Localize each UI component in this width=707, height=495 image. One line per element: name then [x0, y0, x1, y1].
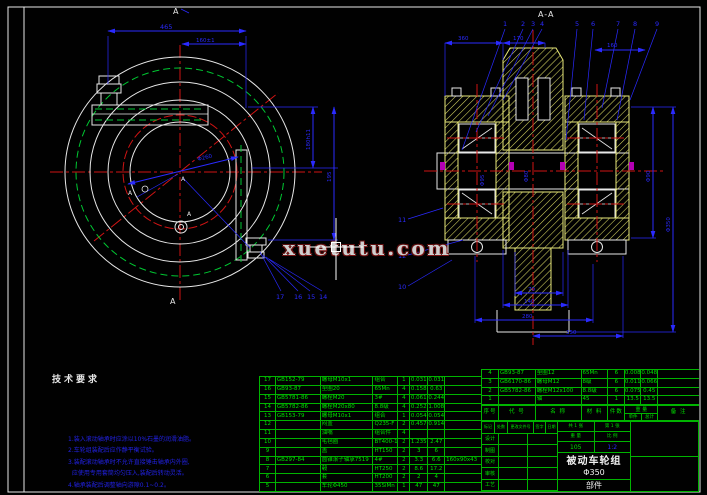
section-view: A-A — [398, 10, 676, 345]
table-row: 16 GB93-87 垫圈20 65Mn 4 0.158 0.63 — [260, 386, 481, 395]
dim-label: 160 — [607, 43, 618, 49]
table-row: 7 毂 HT250 2 8.6 17.2 — [260, 465, 481, 474]
scale-label: 比 例 — [595, 432, 631, 442]
watermark: xuetutu.com — [283, 236, 451, 260]
table-row: 12 闷盖 Q235-F 2 0.457 0.914 — [260, 421, 481, 430]
table-row: 13 GB153-79 螺母M10x1 组合 1 0.054 0.054 — [260, 412, 481, 421]
header-no: 序号 — [482, 406, 499, 421]
admin-row: 制图 — [482, 445, 557, 457]
sheet-number: 第 1 张 — [595, 422, 631, 432]
title-block-admin: 标记 处数 更改文件号 签字 日期 设计 制图 — [482, 422, 558, 491]
dim-label: Φ90 — [646, 170, 652, 182]
scale-value: 1:2 — [595, 442, 631, 454]
left-view-dimensions: 465 160±1 180h11 195 Φ260 — [108, 23, 338, 248]
sheet-count: 共 1 张 — [558, 422, 595, 432]
callout-number: 16 — [294, 293, 302, 301]
parts-table-header: 序号 代 号 名 称 材 料 件数 重 量 单件 总计 备 注 — [481, 405, 699, 421]
header-qty: 件数 — [608, 406, 625, 421]
datum-label-center: A — [181, 176, 186, 183]
title-block-mid: 共 1 张 第 1 张 重 量 比 例 105 1:2 被动车轮组 Φ350 部… — [558, 422, 631, 491]
admin-row: 设计 — [482, 434, 557, 446]
table-row: 6 套 HT200 2 2 4 — [260, 474, 481, 483]
weight-value: 105 — [558, 442, 595, 454]
extra-cell-bottom — [631, 457, 698, 491]
table-row: 2 GB5782-86 螺栓M12x100 8.8级 6 0.075 0.45 — [482, 388, 699, 397]
admin-header-row: 标记 处数 更改文件号 签字 日期 — [482, 422, 557, 434]
header-material: 材 料 — [582, 406, 609, 421]
drawing-title-size: Φ350 — [583, 468, 605, 477]
dim-label: 350 — [566, 330, 577, 336]
dim-label: 170 — [513, 36, 524, 42]
dim-label: 280 — [522, 314, 533, 320]
weight-label: 重 量 — [558, 432, 595, 442]
datum-label-left: A — [128, 190, 133, 197]
dim-height1: 180h11 — [306, 129, 312, 150]
table-row: 8 GB297-84 圆锥滚子轴承7519 4# 2 3.3 6.6 160x9… — [260, 457, 481, 466]
dim-inner-width: 160±1 — [196, 38, 215, 44]
callout-number: 15 — [307, 293, 315, 301]
table-row: 3 GB6170-86 螺母M12 8级 6 0.011 0.066 — [482, 379, 699, 388]
side-plate — [236, 145, 247, 266]
callout-number: 2 — [521, 20, 525, 28]
drawing-title-name: 被动车轮组 — [567, 456, 622, 468]
table-row: 10 毛毡圈 BT400-15 2 1.235 2.47 — [260, 439, 481, 448]
admin-row: 审核 — [482, 468, 557, 480]
dim-height2: 195 — [327, 171, 333, 182]
callout-number: 3 — [531, 20, 535, 28]
dim-width: 465 — [160, 23, 172, 31]
dim-diameter: Φ260 — [197, 153, 213, 163]
drawing-subtitle: 部件 — [558, 480, 630, 491]
parts-table-left: 17 GB152-79 螺母M10x1 组合 1 0.031 0.031 16 … — [259, 376, 481, 492]
callout-number: 1 — [503, 20, 507, 28]
dim-label: 140 — [524, 299, 535, 305]
header-weight-group: 重 量 单件 总计 — [625, 406, 658, 421]
dim-label: Φ95 — [480, 174, 486, 186]
admin-row: 校对 — [482, 457, 557, 469]
title-block-extra — [631, 422, 698, 491]
callout-number: 8 — [633, 20, 637, 28]
header-name: 名 称 — [536, 406, 582, 421]
header-unit: 单件 — [625, 414, 641, 421]
header-weight: 重 量 — [625, 406, 657, 414]
table-row: 4 GB93-87 垫圈12 65Mn 6 0.008 0.048 — [482, 370, 699, 379]
dim-label: 70 — [528, 287, 535, 293]
table-row: 15 GB5781-86 螺栓M20 3# 4 0.061 0.244 — [260, 395, 481, 404]
callout-number: 5 — [575, 20, 579, 28]
table-row: 11 油嘴 组合件 4 — [260, 430, 481, 439]
callout-number: 6 — [591, 20, 595, 28]
callout-number: 10 — [398, 283, 406, 291]
title-block: 标记 处数 更改文件号 签字 日期 设计 制图 — [481, 421, 699, 492]
table-row: 5 车轮Φ450 35SiMn 1 47 47 — [260, 483, 481, 492]
admin-row: 工艺 — [482, 480, 557, 492]
tech-req-title: 技术要求 — [52, 372, 252, 385]
callout-number: 9 — [655, 20, 659, 28]
table-row: 17 GB152-79 螺母M10x1 组合 1 0.031 0.031 — [260, 377, 481, 386]
tech-req-lines: 1.装入滚动轴承时应涂以10%石墨的润滑油脂。2.车轮组装配后应作静平衡试验。3… — [52, 399, 252, 491]
extra-cell-top — [631, 422, 698, 457]
technical-requirements: 技术要求 1.装入滚动轴承时应涂以10%石墨的润滑油脂。2.车轮组装配后应作静平… — [52, 372, 252, 491]
dim-label: 360 — [458, 36, 469, 42]
callout-number: 7 — [616, 20, 620, 28]
header-code: 代 号 — [499, 406, 536, 421]
section-title: A-A — [538, 10, 554, 19]
callout-number: 17 — [276, 293, 284, 301]
callout-number: 14 — [319, 293, 327, 301]
callout-number: 4 — [540, 20, 544, 28]
table-row: 9 盖 HT150 2 3 6 — [260, 448, 481, 457]
cad-canvas[interactable]: xuetutu.com — [0, 0, 707, 495]
parts-table-right: 4 GB93-87 垫圈12 65Mn 6 0.008 0.048 3 GB61… — [481, 369, 699, 405]
dim-label: Φ350 — [666, 217, 672, 232]
dim-label: Φ80 — [524, 170, 530, 182]
table-row: 14 GB5782-86 螺栓M20x80 8.8级 4 0.252 1.008 — [260, 404, 481, 413]
header-total: 总计 — [642, 414, 657, 421]
drawing-title: 被动车轮组 Φ350 — [558, 453, 630, 480]
callout-number: 11 — [398, 216, 406, 224]
left-view: 465 160±1 180h11 195 Φ260 A A A A — [50, 7, 338, 306]
section-label-bottom: A — [170, 297, 176, 306]
header-note: 备 注 — [658, 406, 699, 421]
section-label-top: A — [173, 7, 179, 16]
table-row: 1 轴 45 1 13.5 13.5 — [482, 396, 699, 405]
datum-label-bottom: A — [187, 211, 192, 218]
